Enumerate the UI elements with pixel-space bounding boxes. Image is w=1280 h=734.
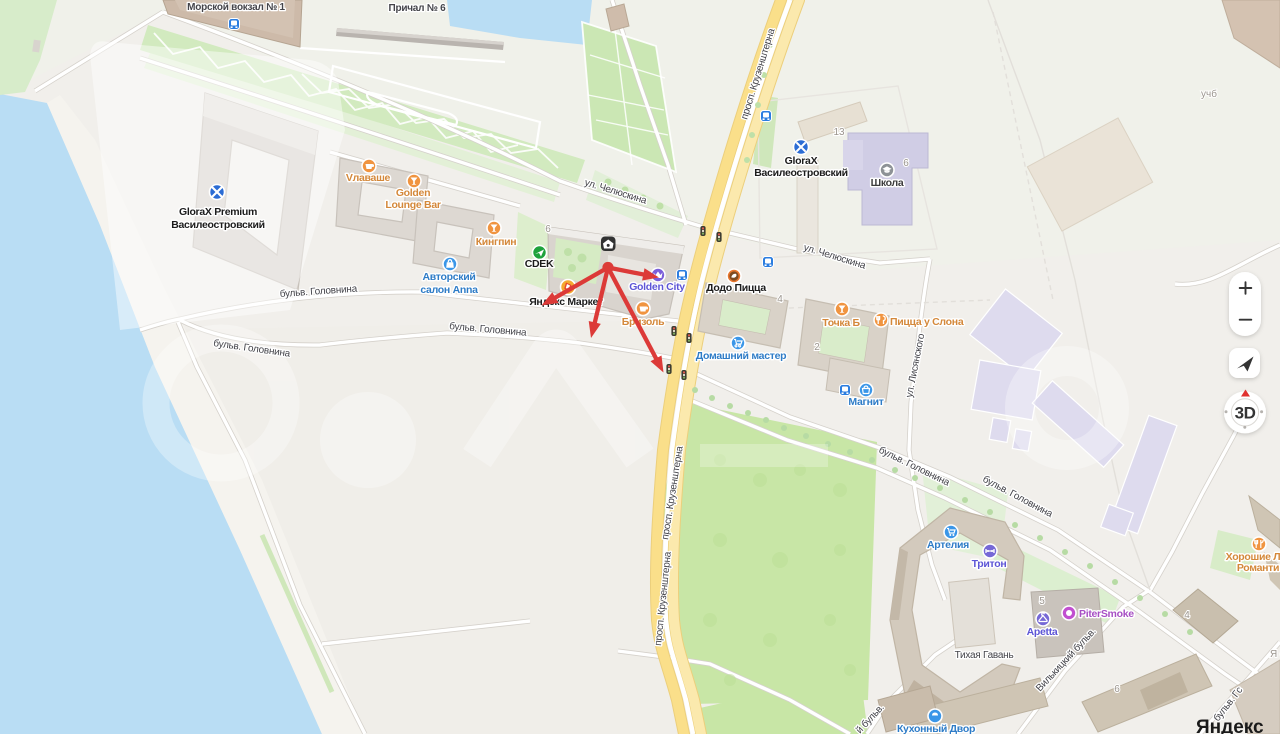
svg-text:Василеостровский: Василеостровский [171,219,265,231]
svg-text:PiterSmoke: PiterSmoke [1079,608,1134,620]
svg-text:5: 5 [1039,596,1045,607]
svg-text:13: 13 [833,127,845,138]
svg-text:Apetta: Apetta [1027,626,1058,638]
svg-text:3D: 3D [1235,404,1256,423]
svg-text:GloraX Premium: GloraX Premium [179,206,257,218]
svg-text:4: 4 [1184,610,1190,621]
svg-text:Яндекс: Яндекс [1196,717,1264,734]
svg-text:Бризоль: Бризоль [622,316,665,328]
svg-text:Школа: Школа [871,177,904,189]
svg-text:Морской вокзал № 1: Морской вокзал № 1 [187,2,285,13]
svg-text:6: 6 [1114,684,1120,695]
svg-text:Golden: Golden [396,187,430,199]
svg-text:6: 6 [903,158,909,169]
svg-text:Golden City: Golden City [629,281,685,293]
svg-text:Кухонный Двор: Кухонный Двор [897,723,975,734]
svg-text:Точка Б: Точка Б [822,317,860,329]
svg-text:4: 4 [777,294,783,305]
svg-text:Я -: Я - [1270,649,1280,660]
svg-text:CDEK: CDEK [525,258,554,270]
svg-text:Пицца у Слона: Пицца у Слона [890,316,964,328]
svg-text:Кингпин: Кингпин [476,236,517,248]
svg-text:Тритон: Тритон [972,558,1007,570]
svg-text:GloraX: GloraX [785,155,818,167]
svg-text:Lounge Bar: Lounge Bar [385,199,441,211]
svg-text:Домашний мастер: Домашний мастер [696,350,786,362]
svg-text:Магнит: Магнит [848,396,883,408]
svg-text:2: 2 [814,342,820,353]
svg-text:6: 6 [545,224,551,235]
svg-text:Додо Пицца: Додо Пицца [706,282,766,294]
svg-text:Яндекс Маркет: Яндекс Маркет [529,296,603,308]
svg-text:Романти: Романти [1237,562,1279,574]
svg-text:Тихая Гавань: Тихая Гавань [955,650,1014,661]
svg-text:Vлаваше: Vлаваше [346,172,391,184]
svg-text:Авторский: Авторский [422,271,475,283]
svg-text:учб: учб [1201,88,1217,100]
svg-text:салон Anna: салон Anna [420,284,478,296]
svg-text:Причал № 6: Причал № 6 [389,3,447,14]
svg-text:Артелия: Артелия [927,539,969,551]
svg-text:Василеостровский: Василеостровский [754,167,848,179]
